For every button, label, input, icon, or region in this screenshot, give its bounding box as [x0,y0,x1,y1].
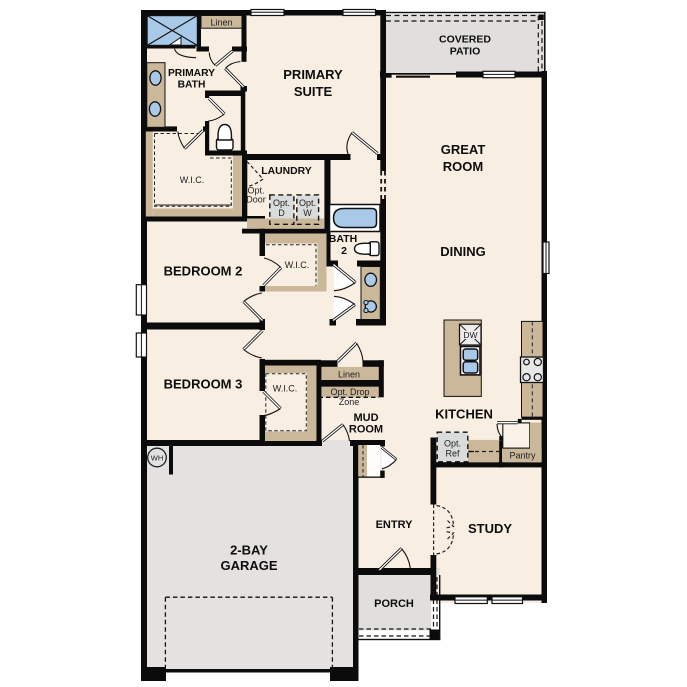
svg-text:Linen: Linen [210,18,232,28]
svg-text:ENTRY: ENTRY [376,519,414,531]
svg-text:BATH: BATH [329,233,357,245]
svg-text:PATIO: PATIO [450,46,481,58]
svg-text:2: 2 [341,245,347,257]
svg-text:KITCHEN: KITCHEN [435,407,493,422]
svg-text:SUITE: SUITE [294,84,333,99]
svg-text:W.I.C.: W.I.C. [273,384,298,394]
svg-text:Linen: Linen [338,370,360,380]
svg-text:MUD: MUD [353,412,378,424]
svg-text:Opt.: Opt. [444,439,461,449]
svg-text:Pantry: Pantry [509,451,536,461]
svg-text:Opt.: Opt. [299,198,316,208]
svg-text:Opt. Drop: Opt. Drop [330,387,369,397]
svg-text:W.I.C.: W.I.C. [285,260,310,270]
svg-text:PRIMARY: PRIMARY [283,67,343,82]
svg-text:2-BAY: 2-BAY [230,543,268,558]
svg-text:STUDY: STUDY [468,521,512,536]
svg-text:ROOM: ROOM [349,424,383,436]
svg-text:W.I.C.: W.I.C. [180,175,205,185]
svg-text:BEDROOM 3: BEDROOM 3 [164,377,243,392]
svg-text:BATH: BATH [178,79,206,90]
svg-text:Opt.: Opt. [273,198,290,208]
svg-text:Door: Door [246,195,266,205]
svg-text:BEDROOM 2: BEDROOM 2 [164,264,243,279]
svg-text:ROOM: ROOM [443,159,483,174]
svg-text:PRIMARY: PRIMARY [168,68,215,79]
svg-text:W: W [303,208,312,218]
svg-text:GREAT: GREAT [441,142,486,157]
svg-text:LAUNDRY: LAUNDRY [261,166,311,177]
svg-text:DW: DW [463,330,477,340]
svg-text:COVERED: COVERED [439,34,491,46]
svg-text:D: D [278,208,285,218]
svg-text:DINING: DINING [440,244,486,259]
svg-text:WH: WH [151,454,164,463]
svg-text:GARAGE: GARAGE [220,558,277,573]
svg-text:Ref: Ref [445,449,460,459]
svg-text:PORCH: PORCH [374,598,414,610]
svg-text:Zone: Zone [339,397,360,407]
